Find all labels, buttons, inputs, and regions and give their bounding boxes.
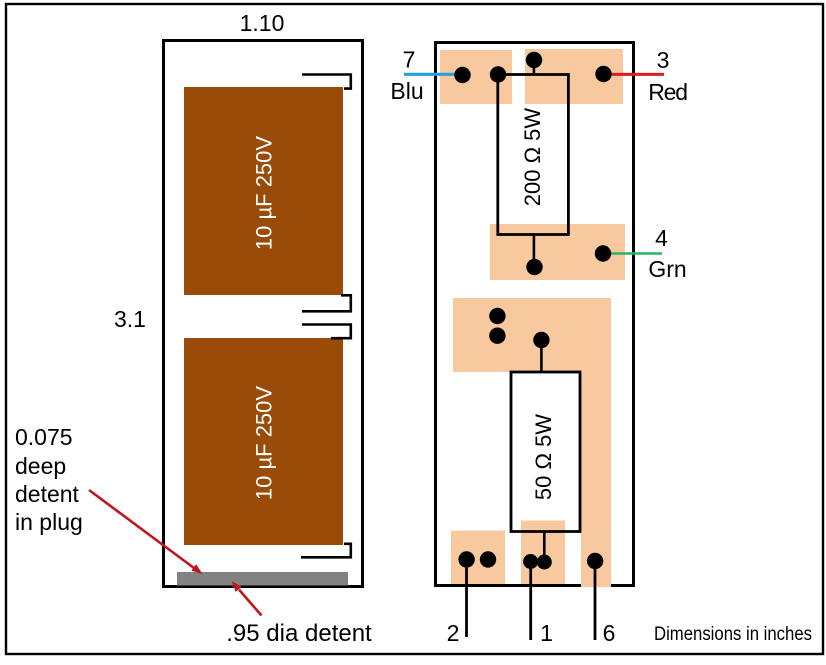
svg-text:3.1: 3.1 [114,306,146,332]
svg-text:Red: Red [648,79,687,105]
svg-text:0.075: 0.075 [15,424,73,450]
svg-text:1.10: 1.10 [240,10,285,36]
svg-text:6: 6 [603,620,616,646]
svg-text:in plug: in plug [15,509,83,535]
svg-text:detent: detent [15,481,80,507]
svg-text:Grn: Grn [648,256,686,282]
svg-text:7: 7 [403,47,416,73]
svg-text:deep: deep [15,453,66,479]
svg-text:3: 3 [657,47,670,73]
svg-text:200 Ω 5W: 200 Ω 5W [520,108,545,207]
svg-text:10 µF 250V: 10 µF 250V [251,386,276,501]
svg-text:10 µF 250V: 10 µF 250V [251,136,276,251]
svg-text:1: 1 [540,620,553,646]
svg-text:50 Ω 5W: 50 Ω 5W [531,414,556,500]
svg-text:Dimensions in inches: Dimensions in inches [654,624,812,645]
svg-text:2: 2 [447,620,460,646]
svg-text:.95 dia detent: .95 dia detent [226,620,372,647]
svg-text:Blu: Blu [390,78,423,104]
svg-text:4: 4 [655,225,668,251]
